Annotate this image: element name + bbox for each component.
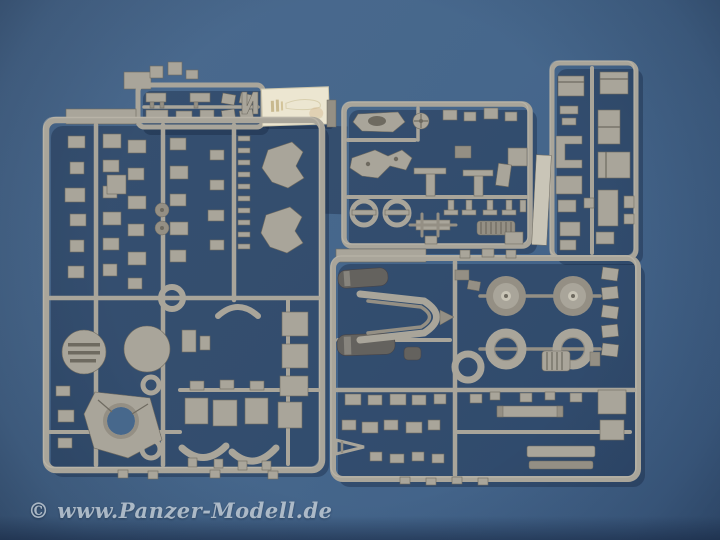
road-wheel-part xyxy=(553,276,593,316)
watermark: © www.Panzer-Modell.de xyxy=(28,498,333,523)
star-wheel-part xyxy=(413,113,429,129)
runner-stub xyxy=(327,100,336,127)
ribbed-drum-part xyxy=(542,351,570,371)
road-wheel-part xyxy=(486,276,526,316)
photo-of-model-kit-sprues: © www.Panzer-Modell.de xyxy=(0,0,720,540)
disc-part xyxy=(124,326,170,372)
slotted-disc-part xyxy=(62,330,106,374)
long-bar-part xyxy=(529,461,593,469)
long-bar-part xyxy=(497,406,563,417)
long-bar-part xyxy=(527,446,595,457)
photo-canvas xyxy=(0,0,720,540)
